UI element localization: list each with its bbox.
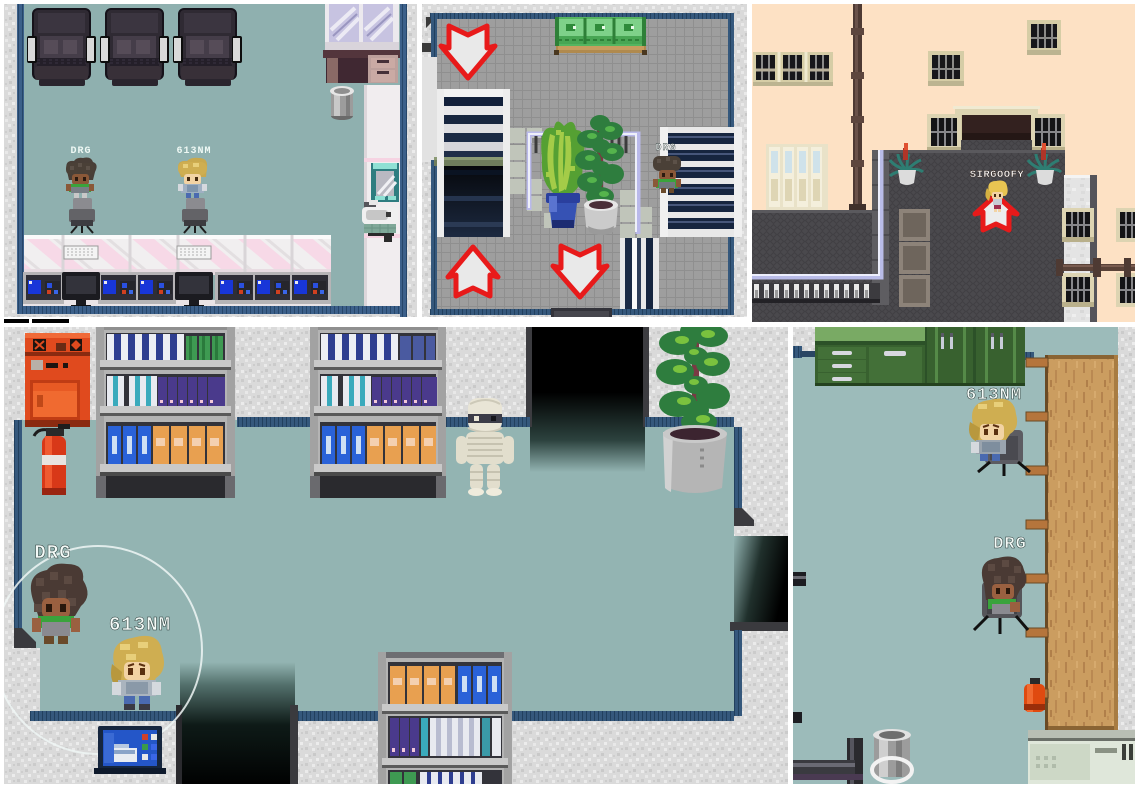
svg-text:DRG: DRG <box>655 143 676 154</box>
svg-text:DRG: DRG <box>993 535 1027 554</box>
svg-text:613NM: 613NM <box>176 146 211 157</box>
svg-text:DRG: DRG <box>34 542 71 564</box>
svg-text:DRG: DRG <box>70 146 91 157</box>
svg-text:613NM: 613NM <box>109 614 171 636</box>
svg-text:SIRGOOFY: SIRGOOFY <box>970 169 1025 181</box>
